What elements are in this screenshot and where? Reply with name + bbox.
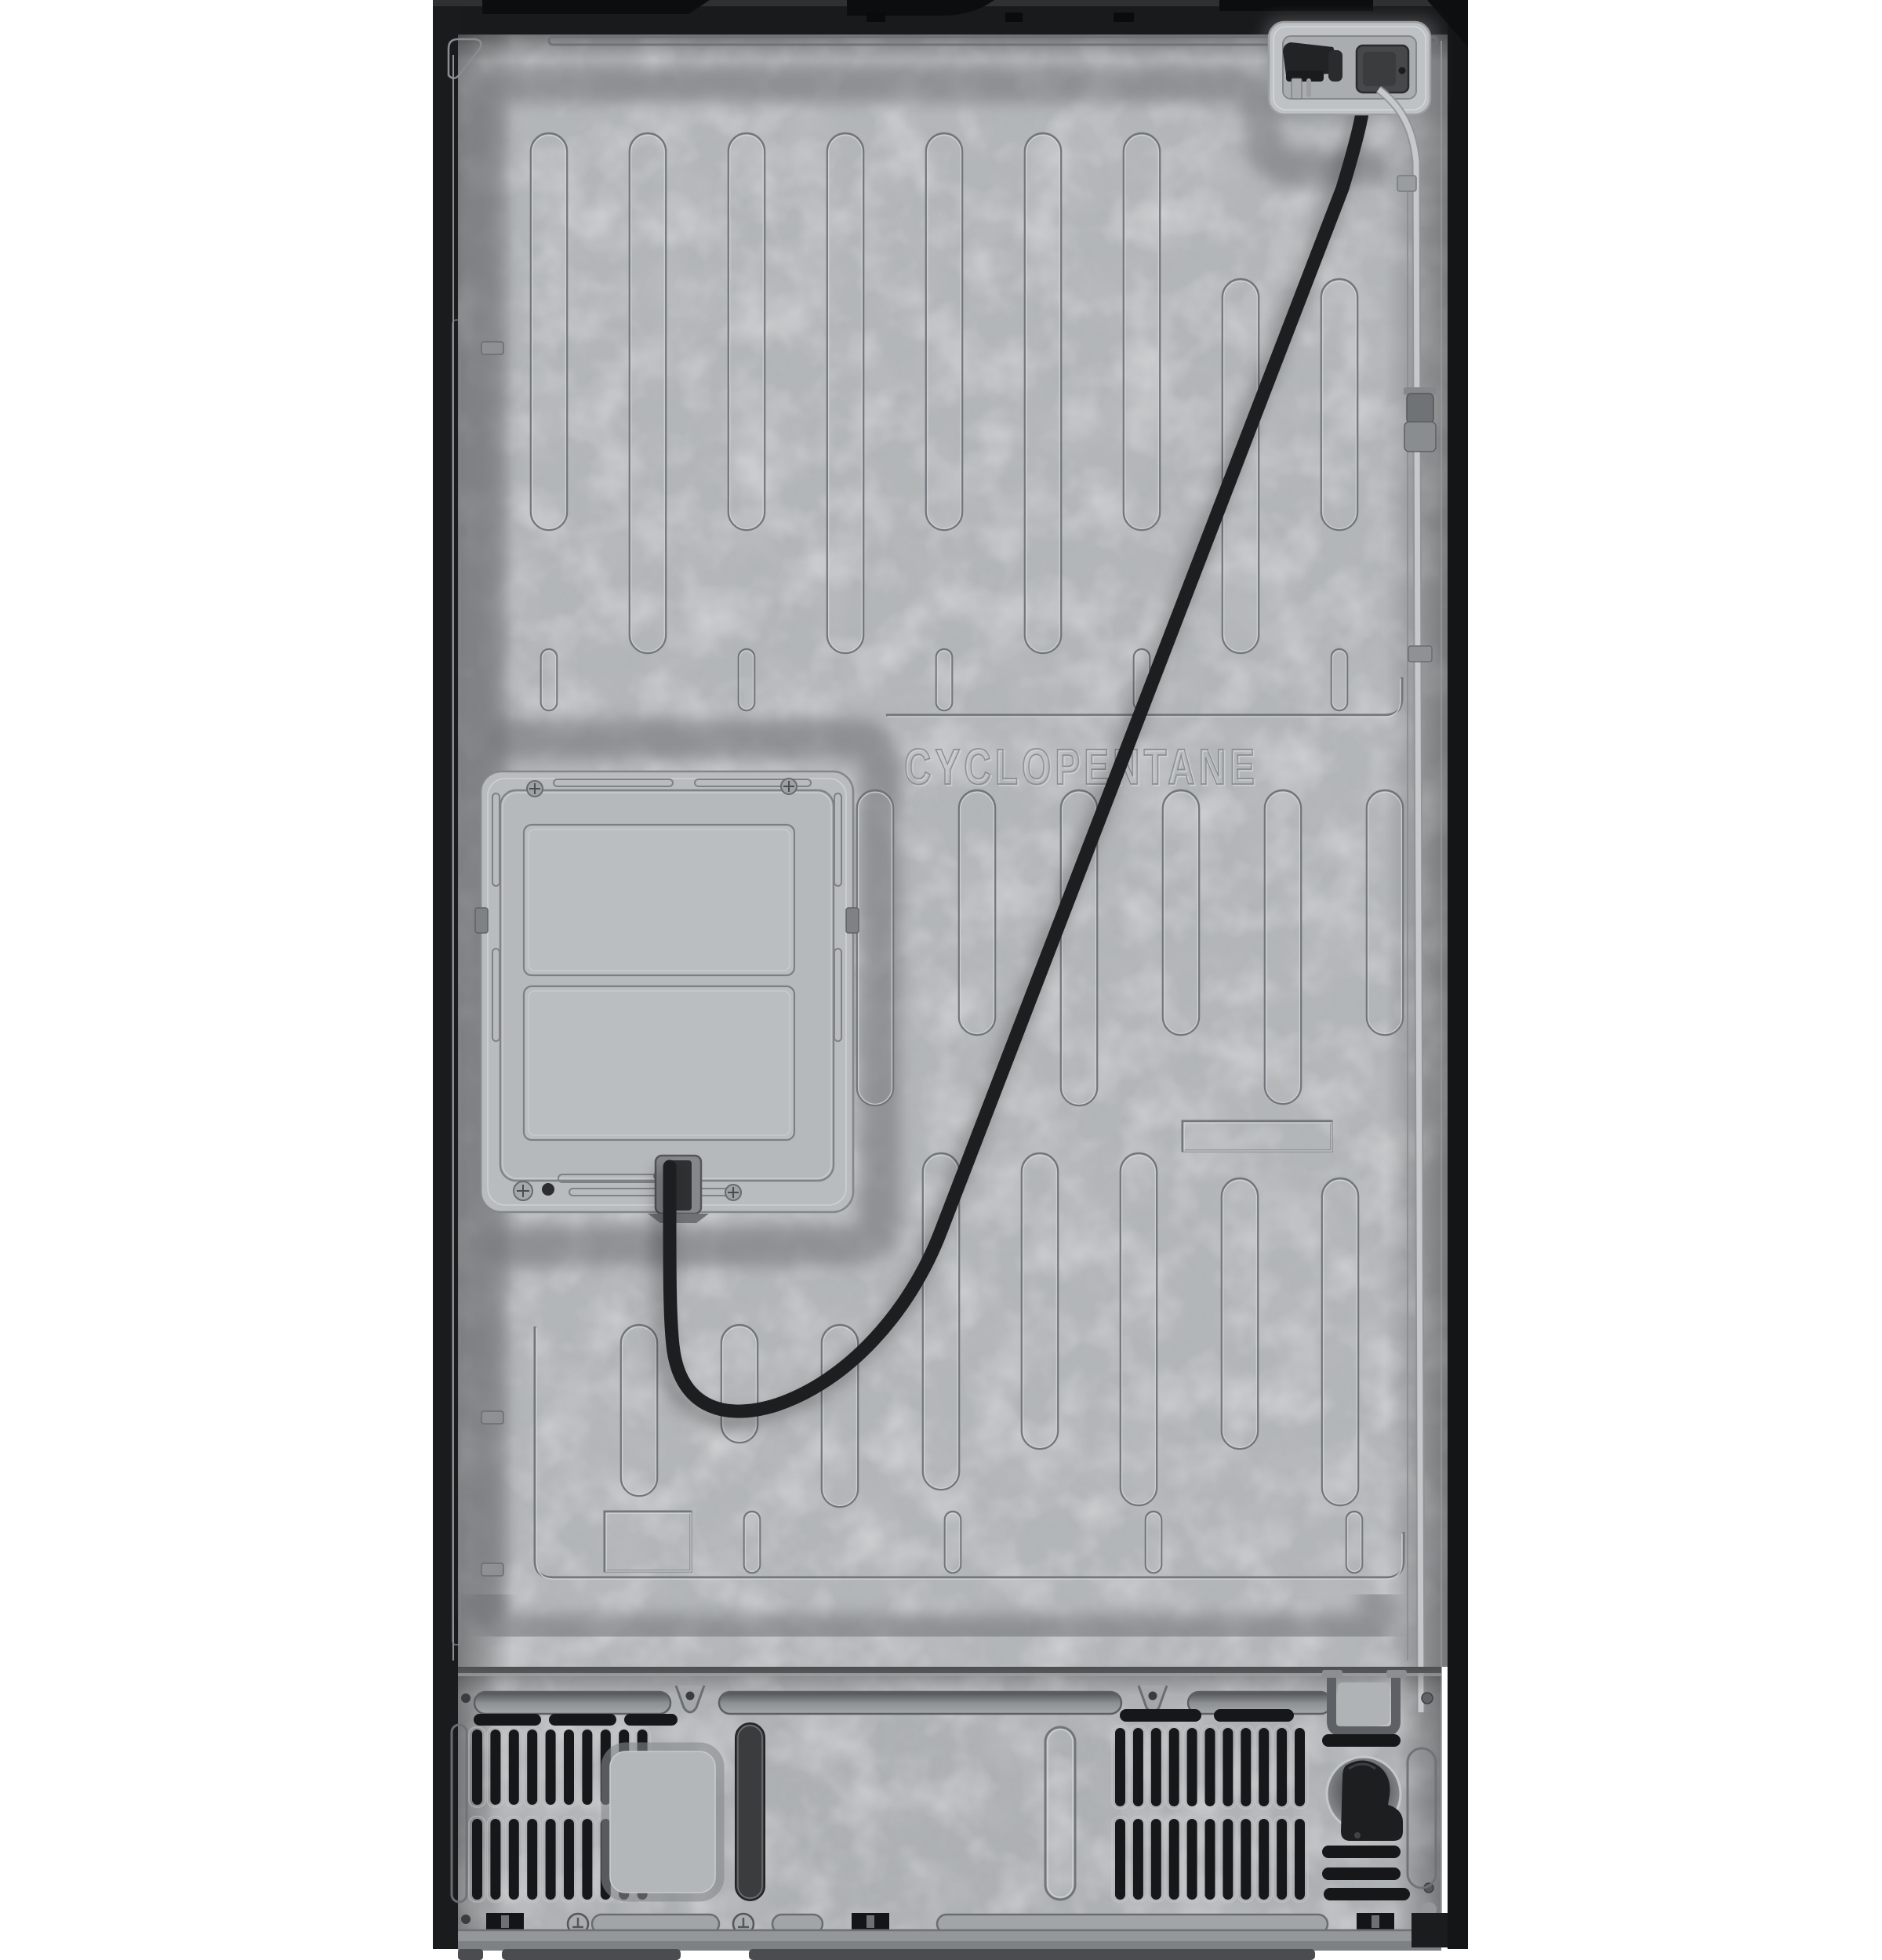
access-panel-side-clip-left	[475, 908, 488, 933]
vent-slat	[1223, 1819, 1233, 1900]
refrigerator-back-photo: CYCLOPENTANE CYCLOPENTANE	[0, 0, 1882, 1960]
mounting-clip	[486, 1913, 524, 1930]
vent-slot	[1322, 1734, 1401, 1747]
vent-slat	[564, 1730, 574, 1805]
vent-slot	[1322, 1867, 1401, 1880]
top-hinge-cover-right	[1219, 0, 1373, 11]
vent-slat	[1115, 1819, 1125, 1900]
vent-slat	[1259, 1819, 1269, 1900]
vent-slat	[472, 1730, 482, 1805]
mounting-clip	[852, 1913, 889, 1930]
vent-slat	[509, 1730, 519, 1805]
vent-slat	[564, 1819, 574, 1900]
vent-slat	[1169, 1819, 1179, 1900]
vent-slat	[582, 1730, 592, 1805]
plug-prong-pin	[1306, 78, 1311, 97]
vent-slat	[1187, 1819, 1197, 1900]
plug-prong-blade	[1292, 78, 1302, 99]
vent-slat	[1151, 1819, 1161, 1900]
vent-slat	[1169, 1728, 1179, 1806]
vent-slat	[1259, 1728, 1269, 1806]
embossed-label-group: CYCLOPENTANE CYCLOPENTANE	[904, 739, 1260, 797]
vent-slat	[1295, 1728, 1305, 1806]
center-vent-slot	[736, 1723, 765, 1900]
access-panel-upper-rect	[524, 825, 794, 975]
vent-slat	[1205, 1728, 1215, 1806]
vent-slat	[1205, 1819, 1215, 1900]
vent-slat	[546, 1730, 556, 1805]
right-edge-trim	[1448, 6, 1468, 1949]
vent-slat	[546, 1819, 556, 1900]
cord-connector-recess	[1269, 22, 1430, 114]
water-line-coupling	[1404, 387, 1437, 452]
access-panel-side-clip-right	[846, 908, 859, 933]
top-hinge-cover-left	[482, 0, 710, 14]
vent-slat	[1133, 1728, 1143, 1806]
plug-head	[1283, 42, 1335, 75]
screw	[461, 1693, 470, 1703]
cord-strain-relief	[1328, 50, 1342, 82]
screw	[1422, 1693, 1433, 1704]
vent-slat	[490, 1819, 500, 1900]
vent-slat	[527, 1819, 537, 1900]
vent-slat	[1277, 1728, 1287, 1806]
left-edge-trim	[433, 6, 460, 1949]
vent-slat	[1133, 1819, 1143, 1900]
water-line-clip-top	[1397, 176, 1416, 191]
access-panel-hole	[542, 1183, 554, 1196]
access-panel	[475, 771, 859, 1223]
access-panel-lower-rect	[524, 986, 794, 1140]
vent-slat	[509, 1819, 519, 1900]
vent-slat	[582, 1819, 592, 1900]
vent-slat	[1115, 1728, 1125, 1806]
drain-pan-cover-plate	[605, 1747, 720, 1897]
connector-box-screw	[1399, 67, 1406, 74]
leveling-foot-left	[502, 1949, 681, 1960]
base-foot-bar	[749, 1949, 1315, 1960]
vent-slat	[1151, 1728, 1161, 1806]
water-line-clip-mid	[1408, 646, 1432, 662]
vent-slat	[472, 1819, 482, 1900]
vent-slat	[1277, 1819, 1287, 1900]
vent-slat	[527, 1730, 537, 1805]
vent-slat	[1241, 1819, 1251, 1900]
vent-slot	[1322, 1846, 1401, 1858]
vent-slat	[1295, 1819, 1305, 1900]
vent-slat	[1187, 1728, 1197, 1806]
vent-slat	[490, 1730, 500, 1805]
mounting-clip	[1357, 1913, 1394, 1930]
screw	[461, 1915, 470, 1924]
embossed-label: CYCLOPENTANE	[904, 739, 1259, 795]
vent-slat	[1223, 1728, 1233, 1806]
vent-slot	[1324, 1888, 1410, 1900]
vent-slat	[1241, 1728, 1251, 1806]
back-panel-illustration: CYCLOPENTANE CYCLOPENTANE	[0, 0, 1882, 1960]
